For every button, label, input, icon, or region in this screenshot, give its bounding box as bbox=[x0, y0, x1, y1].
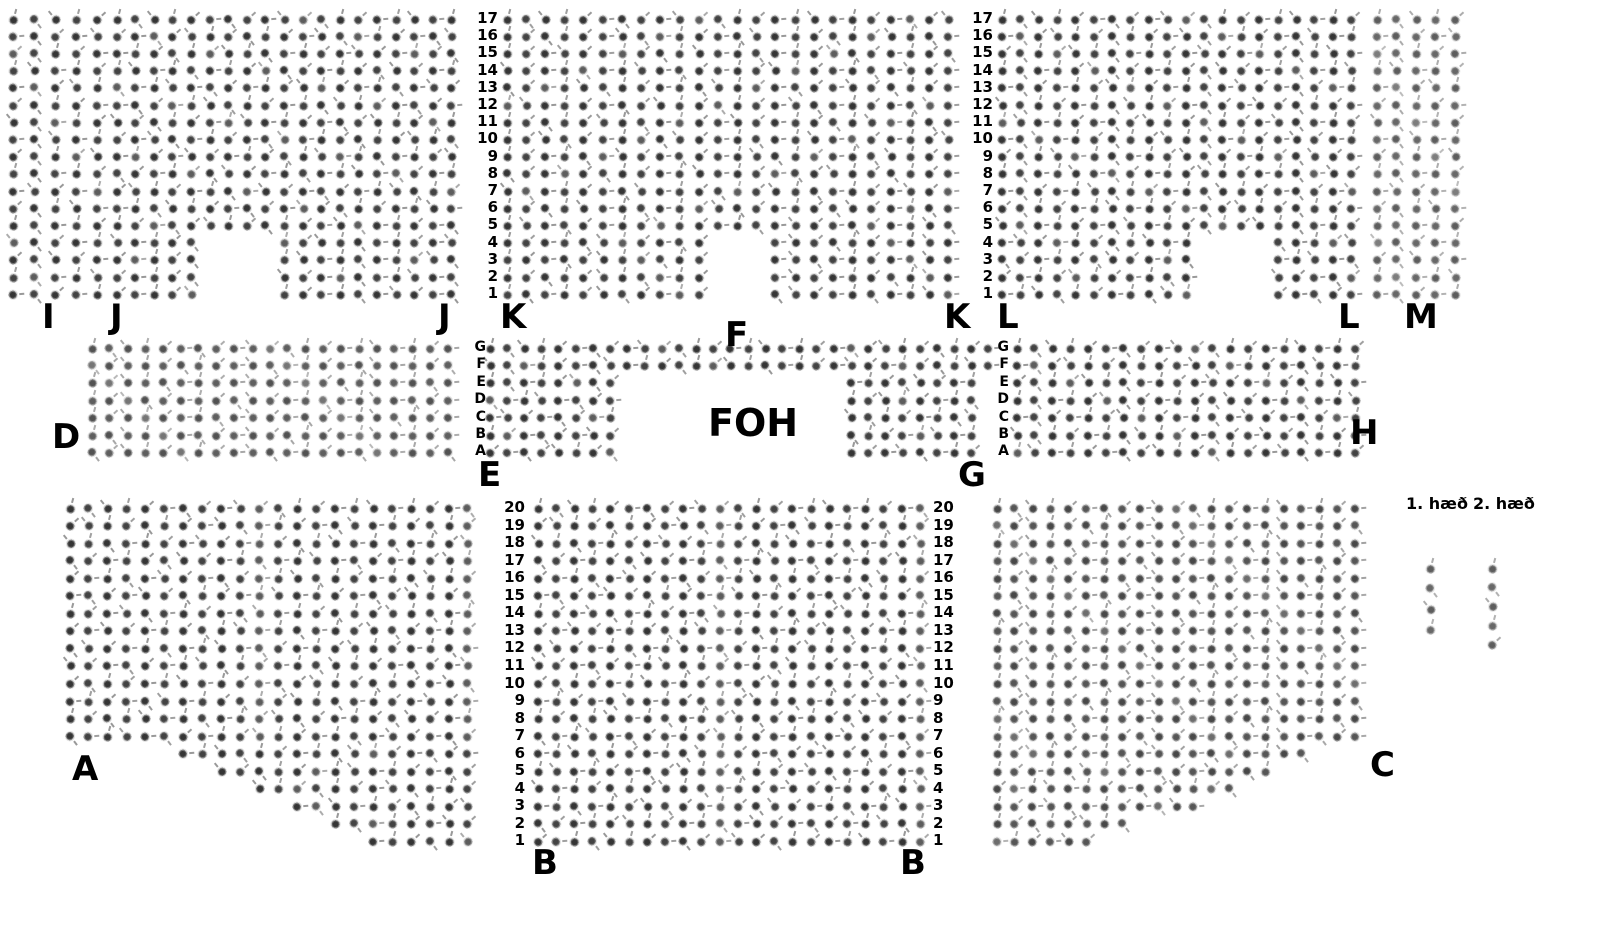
seat-A[interactable] bbox=[195, 746, 210, 761]
seat-B[interactable] bbox=[876, 834, 891, 849]
seat-A[interactable] bbox=[216, 538, 227, 549]
seat-C[interactable] bbox=[1331, 713, 1343, 725]
seat-C[interactable] bbox=[1152, 590, 1164, 602]
seat-A[interactable] bbox=[197, 625, 209, 637]
seat-L[interactable] bbox=[1326, 218, 1341, 233]
seat-C[interactable] bbox=[1097, 711, 1112, 726]
seat-J[interactable] bbox=[372, 48, 383, 59]
seat-K[interactable] bbox=[539, 30, 551, 42]
seat-B[interactable] bbox=[860, 731, 871, 742]
seat-C[interactable] bbox=[1224, 660, 1235, 671]
seat-C[interactable] bbox=[1132, 746, 1147, 761]
seat-K[interactable] bbox=[710, 149, 725, 164]
seat-B[interactable] bbox=[787, 783, 799, 795]
seat-I[interactable] bbox=[47, 218, 62, 233]
seat-M[interactable] bbox=[1391, 254, 1403, 266]
seat-L[interactable] bbox=[1050, 218, 1065, 233]
seat-C[interactable] bbox=[1117, 643, 1128, 654]
seat-A[interactable] bbox=[178, 520, 189, 531]
seat-J[interactable] bbox=[407, 46, 422, 61]
seat-L[interactable] bbox=[1180, 254, 1192, 266]
seat-H[interactable] bbox=[1243, 395, 1254, 406]
seat-C[interactable] bbox=[1224, 642, 1236, 654]
seat-A[interactable] bbox=[328, 676, 343, 691]
seat-L[interactable] bbox=[1307, 114, 1322, 129]
seat-A[interactable] bbox=[271, 553, 286, 568]
seat-B[interactable] bbox=[858, 553, 873, 568]
seat-K[interactable] bbox=[615, 235, 630, 250]
seat-EFG[interactable] bbox=[585, 410, 600, 425]
seat-L[interactable] bbox=[1290, 47, 1302, 59]
seat-H[interactable] bbox=[1243, 343, 1254, 354]
seat-L[interactable] bbox=[1107, 82, 1119, 94]
seat-D[interactable] bbox=[246, 429, 258, 441]
seat-K[interactable] bbox=[768, 97, 783, 112]
seat-C[interactable] bbox=[1278, 748, 1290, 760]
seat-B[interactable] bbox=[896, 678, 908, 690]
seat-D[interactable] bbox=[138, 410, 153, 425]
seat-H[interactable] bbox=[1330, 445, 1345, 460]
seat-A[interactable] bbox=[140, 520, 152, 532]
seat-K[interactable] bbox=[672, 115, 687, 130]
seat-J[interactable] bbox=[205, 203, 216, 214]
seat-B[interactable] bbox=[840, 781, 855, 796]
seat-L[interactable] bbox=[1199, 168, 1211, 180]
seat-L[interactable] bbox=[1052, 100, 1063, 111]
seat-B[interactable] bbox=[567, 606, 582, 621]
seat-C[interactable] bbox=[989, 641, 1004, 656]
seat-J[interactable] bbox=[370, 11, 385, 26]
seat-J[interactable] bbox=[167, 133, 179, 145]
seat-EFG[interactable] bbox=[517, 358, 532, 373]
seat-K[interactable] bbox=[595, 28, 610, 43]
seat-A[interactable] bbox=[83, 678, 95, 690]
seat-EFG[interactable] bbox=[845, 429, 857, 441]
seat-J[interactable] bbox=[128, 286, 143, 301]
seat-C[interactable] bbox=[989, 658, 1004, 673]
seat-EFG[interactable] bbox=[551, 392, 566, 407]
seat-J[interactable] bbox=[239, 183, 254, 198]
seat-D[interactable] bbox=[104, 360, 115, 371]
seat-A[interactable] bbox=[140, 695, 152, 707]
seat-K[interactable] bbox=[615, 218, 630, 233]
seat-C[interactable] bbox=[1258, 571, 1273, 586]
seat-I[interactable] bbox=[68, 132, 83, 147]
seat-M[interactable] bbox=[1371, 116, 1383, 128]
seat-L[interactable] bbox=[1344, 149, 1359, 164]
seat-J[interactable] bbox=[316, 48, 327, 59]
seat-A[interactable] bbox=[406, 766, 417, 777]
seat-K[interactable] bbox=[904, 65, 916, 77]
seat-B[interactable] bbox=[878, 607, 890, 619]
seat-J[interactable] bbox=[370, 286, 385, 301]
seat-A[interactable] bbox=[403, 606, 418, 621]
seat-EFG[interactable] bbox=[931, 342, 943, 354]
seat-B[interactable] bbox=[731, 781, 746, 796]
seat-L[interactable] bbox=[1068, 29, 1083, 44]
seat-C[interactable] bbox=[1043, 693, 1058, 708]
seat-J[interactable] bbox=[112, 272, 123, 283]
seat-J[interactable] bbox=[390, 65, 402, 77]
seat-M[interactable] bbox=[1391, 271, 1403, 283]
seat-M[interactable] bbox=[1449, 151, 1461, 163]
seat-J[interactable] bbox=[314, 80, 329, 95]
seat-L[interactable] bbox=[1031, 63, 1046, 78]
seat-M[interactable] bbox=[1428, 28, 1443, 43]
seat-M[interactable] bbox=[1410, 134, 1422, 146]
seat-B[interactable] bbox=[714, 818, 726, 830]
seat-K[interactable] bbox=[653, 269, 668, 284]
seat-B[interactable] bbox=[603, 728, 618, 743]
seat-J[interactable] bbox=[277, 166, 292, 181]
seat-L[interactable] bbox=[1162, 134, 1174, 146]
seat-D[interactable] bbox=[211, 395, 222, 406]
seat-B[interactable] bbox=[858, 641, 873, 656]
seat-J[interactable] bbox=[204, 168, 216, 180]
seat-C[interactable] bbox=[1152, 660, 1164, 672]
seat-A[interactable] bbox=[64, 555, 76, 567]
seat-L[interactable] bbox=[994, 166, 1009, 181]
seat-A[interactable] bbox=[443, 765, 455, 777]
seat-C[interactable] bbox=[1027, 818, 1039, 830]
seat-L[interactable] bbox=[1199, 48, 1211, 60]
seat-M[interactable] bbox=[1450, 65, 1461, 76]
seat-EFG[interactable] bbox=[759, 359, 771, 371]
seat-K[interactable] bbox=[636, 220, 647, 231]
seat-K[interactable] bbox=[826, 132, 841, 147]
seat-D[interactable] bbox=[211, 360, 222, 371]
seat-K[interactable] bbox=[539, 271, 551, 283]
seat-A[interactable] bbox=[424, 572, 436, 584]
seat-J[interactable] bbox=[147, 269, 162, 284]
seat-K[interactable] bbox=[538, 166, 553, 181]
seat-K[interactable] bbox=[847, 47, 859, 59]
seat-D[interactable] bbox=[333, 445, 348, 460]
seat-C[interactable] bbox=[1152, 730, 1164, 742]
seat-A[interactable] bbox=[62, 606, 77, 621]
seat-I[interactable] bbox=[47, 63, 62, 78]
seat-C[interactable] bbox=[1332, 590, 1343, 601]
seat-K[interactable] bbox=[809, 203, 820, 214]
seat-J[interactable] bbox=[147, 183, 162, 198]
seat-I[interactable] bbox=[89, 287, 104, 302]
seat-H[interactable] bbox=[1278, 447, 1290, 459]
seat-A[interactable] bbox=[100, 553, 115, 568]
seat-J[interactable] bbox=[372, 100, 383, 111]
seat-M[interactable] bbox=[1450, 117, 1461, 128]
seat-K[interactable] bbox=[866, 237, 877, 248]
seat-M[interactable] bbox=[1391, 13, 1403, 25]
seat-M[interactable] bbox=[1372, 100, 1383, 111]
seat-K[interactable] bbox=[808, 254, 820, 266]
seat-K[interactable] bbox=[768, 200, 783, 215]
seat-L[interactable] bbox=[1307, 63, 1322, 78]
seat-B[interactable] bbox=[696, 520, 708, 532]
seat-J[interactable] bbox=[149, 151, 160, 162]
seat-A[interactable] bbox=[138, 676, 153, 691]
seat-B[interactable] bbox=[840, 571, 855, 586]
seat-C[interactable] bbox=[989, 799, 1004, 814]
seat-K[interactable] bbox=[636, 82, 647, 93]
seat-J[interactable] bbox=[146, 63, 161, 78]
seat-C[interactable] bbox=[1186, 606, 1201, 621]
seat-K[interactable] bbox=[694, 237, 705, 248]
seat-B[interactable] bbox=[876, 676, 891, 691]
seat-L[interactable] bbox=[1346, 254, 1358, 266]
seat-B[interactable] bbox=[823, 678, 835, 690]
seat-M[interactable] bbox=[1447, 80, 1462, 95]
seat-H[interactable] bbox=[1029, 429, 1041, 441]
seat-C[interactable] bbox=[1097, 641, 1112, 656]
seat-B[interactable] bbox=[894, 518, 909, 533]
seat-A[interactable] bbox=[330, 643, 341, 654]
seat-A[interactable] bbox=[138, 570, 153, 585]
seat-B[interactable] bbox=[806, 678, 817, 689]
seat-I[interactable] bbox=[47, 46, 62, 61]
seat-A[interactable] bbox=[366, 535, 381, 550]
seat-L[interactable] bbox=[1123, 29, 1138, 44]
seat-EFG[interactable] bbox=[929, 445, 944, 460]
seat-H[interactable] bbox=[1187, 410, 1202, 425]
seat-L[interactable] bbox=[1033, 237, 1044, 248]
seat-H[interactable] bbox=[1154, 360, 1165, 371]
seat-EFG[interactable] bbox=[863, 395, 874, 406]
seat-B[interactable] bbox=[660, 555, 671, 566]
seat-EFG[interactable] bbox=[499, 392, 514, 407]
seat-H[interactable] bbox=[1045, 445, 1060, 460]
seat-B[interactable] bbox=[785, 764, 800, 779]
seat-A[interactable] bbox=[102, 502, 114, 514]
seat-J[interactable] bbox=[260, 203, 271, 214]
seat-L[interactable] bbox=[1125, 117, 1136, 128]
seat-K[interactable] bbox=[694, 186, 705, 197]
seat-B[interactable] bbox=[785, 729, 800, 744]
seat-B[interactable] bbox=[715, 660, 726, 671]
seat-C[interactable] bbox=[1063, 748, 1074, 759]
seat-J[interactable] bbox=[109, 149, 124, 164]
seat-L[interactable] bbox=[1272, 271, 1284, 283]
seat-A[interactable] bbox=[328, 764, 343, 779]
seat-H[interactable] bbox=[1009, 358, 1024, 373]
seat-K[interactable] bbox=[636, 185, 648, 197]
seat-A[interactable] bbox=[328, 781, 343, 796]
seat-I[interactable] bbox=[47, 114, 62, 129]
seat-EFG[interactable] bbox=[673, 359, 685, 371]
seat-H[interactable] bbox=[1330, 410, 1345, 425]
seat-K[interactable] bbox=[789, 220, 801, 232]
seat-B[interactable] bbox=[548, 570, 563, 585]
seat-B[interactable] bbox=[658, 746, 673, 761]
seat-D[interactable] bbox=[246, 447, 258, 459]
seat-L[interactable] bbox=[1014, 202, 1026, 214]
seat-L[interactable] bbox=[1050, 115, 1065, 130]
seat-C[interactable] bbox=[1170, 520, 1182, 532]
seat-C[interactable] bbox=[1258, 764, 1273, 779]
seat-K[interactable] bbox=[904, 99, 916, 111]
seat-A[interactable] bbox=[292, 766, 303, 777]
seat-A[interactable] bbox=[197, 537, 209, 549]
seat-K[interactable] bbox=[903, 235, 918, 250]
seat-K[interactable] bbox=[636, 100, 647, 111]
seat-B[interactable] bbox=[678, 835, 690, 847]
seat-A[interactable] bbox=[83, 590, 95, 602]
seat-A[interactable] bbox=[366, 641, 381, 656]
seat-K[interactable] bbox=[768, 46, 783, 61]
seat-A[interactable] bbox=[291, 537, 303, 549]
seat-B[interactable] bbox=[822, 641, 837, 656]
seat-I[interactable] bbox=[68, 11, 83, 26]
seat-I[interactable] bbox=[89, 235, 104, 250]
seat-EFG[interactable] bbox=[499, 445, 514, 460]
seat-D[interactable] bbox=[405, 445, 420, 460]
seat-C[interactable] bbox=[1116, 748, 1128, 760]
seat-H[interactable] bbox=[1045, 375, 1060, 390]
seat-A[interactable] bbox=[387, 801, 398, 812]
seat-A[interactable] bbox=[460, 711, 475, 726]
seat-B[interactable] bbox=[696, 748, 708, 760]
seat-B[interactable] bbox=[678, 572, 690, 584]
seat-C[interactable] bbox=[1278, 695, 1290, 707]
seat-K[interactable] bbox=[557, 149, 572, 164]
seat-D[interactable] bbox=[228, 394, 240, 406]
seat-J[interactable] bbox=[409, 65, 420, 76]
seat-K[interactable] bbox=[751, 133, 763, 145]
seat-C[interactable] bbox=[1079, 781, 1094, 796]
seat-K[interactable] bbox=[903, 29, 918, 44]
seat-B[interactable] bbox=[858, 799, 873, 814]
seat-M[interactable] bbox=[1428, 11, 1443, 26]
seat-L[interactable] bbox=[1125, 168, 1136, 179]
seat-H[interactable] bbox=[1225, 377, 1236, 388]
seat-EFG[interactable] bbox=[914, 377, 926, 389]
seat-C[interactable] bbox=[1043, 606, 1058, 621]
seat-L[interactable] bbox=[996, 254, 1008, 266]
seat-K[interactable] bbox=[595, 132, 610, 147]
seat-J[interactable] bbox=[184, 201, 199, 216]
seat-EFG[interactable] bbox=[725, 360, 737, 372]
seat-B[interactable] bbox=[769, 608, 780, 619]
seat-K[interactable] bbox=[847, 133, 859, 145]
seat-K[interactable] bbox=[615, 132, 630, 147]
seat-A[interactable] bbox=[349, 625, 360, 636]
seat-J[interactable] bbox=[409, 289, 420, 300]
seat-J[interactable] bbox=[221, 115, 236, 130]
seat-C[interactable] bbox=[1027, 537, 1039, 549]
seat-H[interactable] bbox=[1009, 340, 1024, 355]
seat-K[interactable] bbox=[694, 272, 705, 283]
seat-D[interactable] bbox=[333, 392, 348, 407]
seat-B[interactable] bbox=[803, 500, 818, 515]
seat-C[interactable] bbox=[1152, 800, 1164, 812]
seat-J[interactable] bbox=[316, 203, 327, 214]
seat-H[interactable] bbox=[1098, 340, 1113, 355]
seat-K[interactable] bbox=[521, 272, 532, 283]
seat-B[interactable] bbox=[860, 520, 871, 531]
seat-J[interactable] bbox=[388, 97, 403, 112]
seat-B[interactable] bbox=[694, 764, 709, 779]
seat-B[interactable] bbox=[914, 678, 926, 690]
seat-L[interactable] bbox=[1123, 287, 1138, 302]
seat-L[interactable] bbox=[1162, 271, 1174, 283]
seat-A[interactable] bbox=[273, 696, 284, 707]
seat-A[interactable] bbox=[271, 781, 286, 796]
seat-D[interactable] bbox=[104, 395, 115, 406]
seat-L[interactable] bbox=[1160, 28, 1175, 43]
seat-M[interactable] bbox=[1369, 132, 1384, 147]
seat-C[interactable] bbox=[1240, 693, 1255, 708]
seat-A[interactable] bbox=[233, 711, 248, 726]
seat-C[interactable] bbox=[1312, 676, 1327, 691]
seat-D[interactable] bbox=[387, 427, 402, 442]
seat-K[interactable] bbox=[578, 65, 590, 77]
seat-B[interactable] bbox=[585, 816, 600, 831]
seat-A[interactable] bbox=[406, 818, 417, 829]
seat-L[interactable] bbox=[1252, 149, 1267, 164]
seat-L[interactable] bbox=[1014, 133, 1026, 145]
seat-J[interactable] bbox=[351, 97, 366, 112]
seat-A[interactable] bbox=[81, 570, 96, 585]
seat-K[interactable] bbox=[883, 200, 898, 215]
seat-K[interactable] bbox=[924, 186, 935, 197]
seat-K[interactable] bbox=[845, 235, 860, 250]
seat-B[interactable] bbox=[769, 660, 781, 672]
seat-J[interactable] bbox=[370, 80, 385, 95]
seat-J[interactable] bbox=[425, 63, 440, 78]
seat-B[interactable] bbox=[569, 502, 581, 514]
seat-H[interactable] bbox=[1118, 446, 1130, 458]
seat-H[interactable] bbox=[1296, 342, 1308, 354]
seat-M[interactable] bbox=[1391, 168, 1403, 180]
seat-L[interactable] bbox=[1106, 30, 1118, 42]
seat-K[interactable] bbox=[597, 116, 609, 128]
seat-B[interactable] bbox=[603, 746, 618, 761]
seat-D[interactable] bbox=[318, 412, 329, 423]
seat-D[interactable] bbox=[405, 340, 420, 355]
seat-A[interactable] bbox=[328, 816, 343, 831]
seat-K[interactable] bbox=[557, 29, 572, 44]
seat-EFG[interactable] bbox=[517, 393, 532, 408]
seat-L[interactable] bbox=[1180, 30, 1192, 42]
seat-B[interactable] bbox=[769, 678, 781, 690]
seat-B[interactable] bbox=[767, 623, 782, 638]
seat-L[interactable] bbox=[1143, 288, 1155, 300]
seat-H[interactable] bbox=[1330, 393, 1345, 408]
seat-L[interactable] bbox=[1049, 235, 1064, 250]
seat-C[interactable] bbox=[1079, 535, 1094, 550]
seat-A[interactable] bbox=[273, 643, 284, 654]
seat-H[interactable] bbox=[1207, 342, 1219, 354]
seat-J[interactable] bbox=[388, 200, 403, 215]
seat-I[interactable] bbox=[89, 200, 104, 215]
seat-H[interactable] bbox=[1152, 375, 1167, 390]
seat-K[interactable] bbox=[616, 288, 628, 300]
seat-B[interactable] bbox=[915, 573, 926, 584]
seat-J[interactable] bbox=[388, 46, 403, 61]
seat-A[interactable] bbox=[271, 764, 286, 779]
seat-J[interactable] bbox=[407, 149, 422, 164]
seat-EFG[interactable] bbox=[878, 445, 893, 460]
seat-B[interactable] bbox=[639, 693, 654, 708]
seat-B[interactable] bbox=[913, 711, 928, 726]
seat-K[interactable] bbox=[694, 31, 705, 42]
seat-K[interactable] bbox=[885, 168, 897, 180]
seat-A[interactable] bbox=[197, 608, 208, 619]
seat-H[interactable] bbox=[1276, 358, 1291, 373]
seat-K[interactable] bbox=[787, 46, 802, 61]
seat-H[interactable] bbox=[1118, 359, 1130, 371]
seat-K[interactable] bbox=[768, 132, 783, 147]
seat-K[interactable] bbox=[883, 252, 898, 267]
